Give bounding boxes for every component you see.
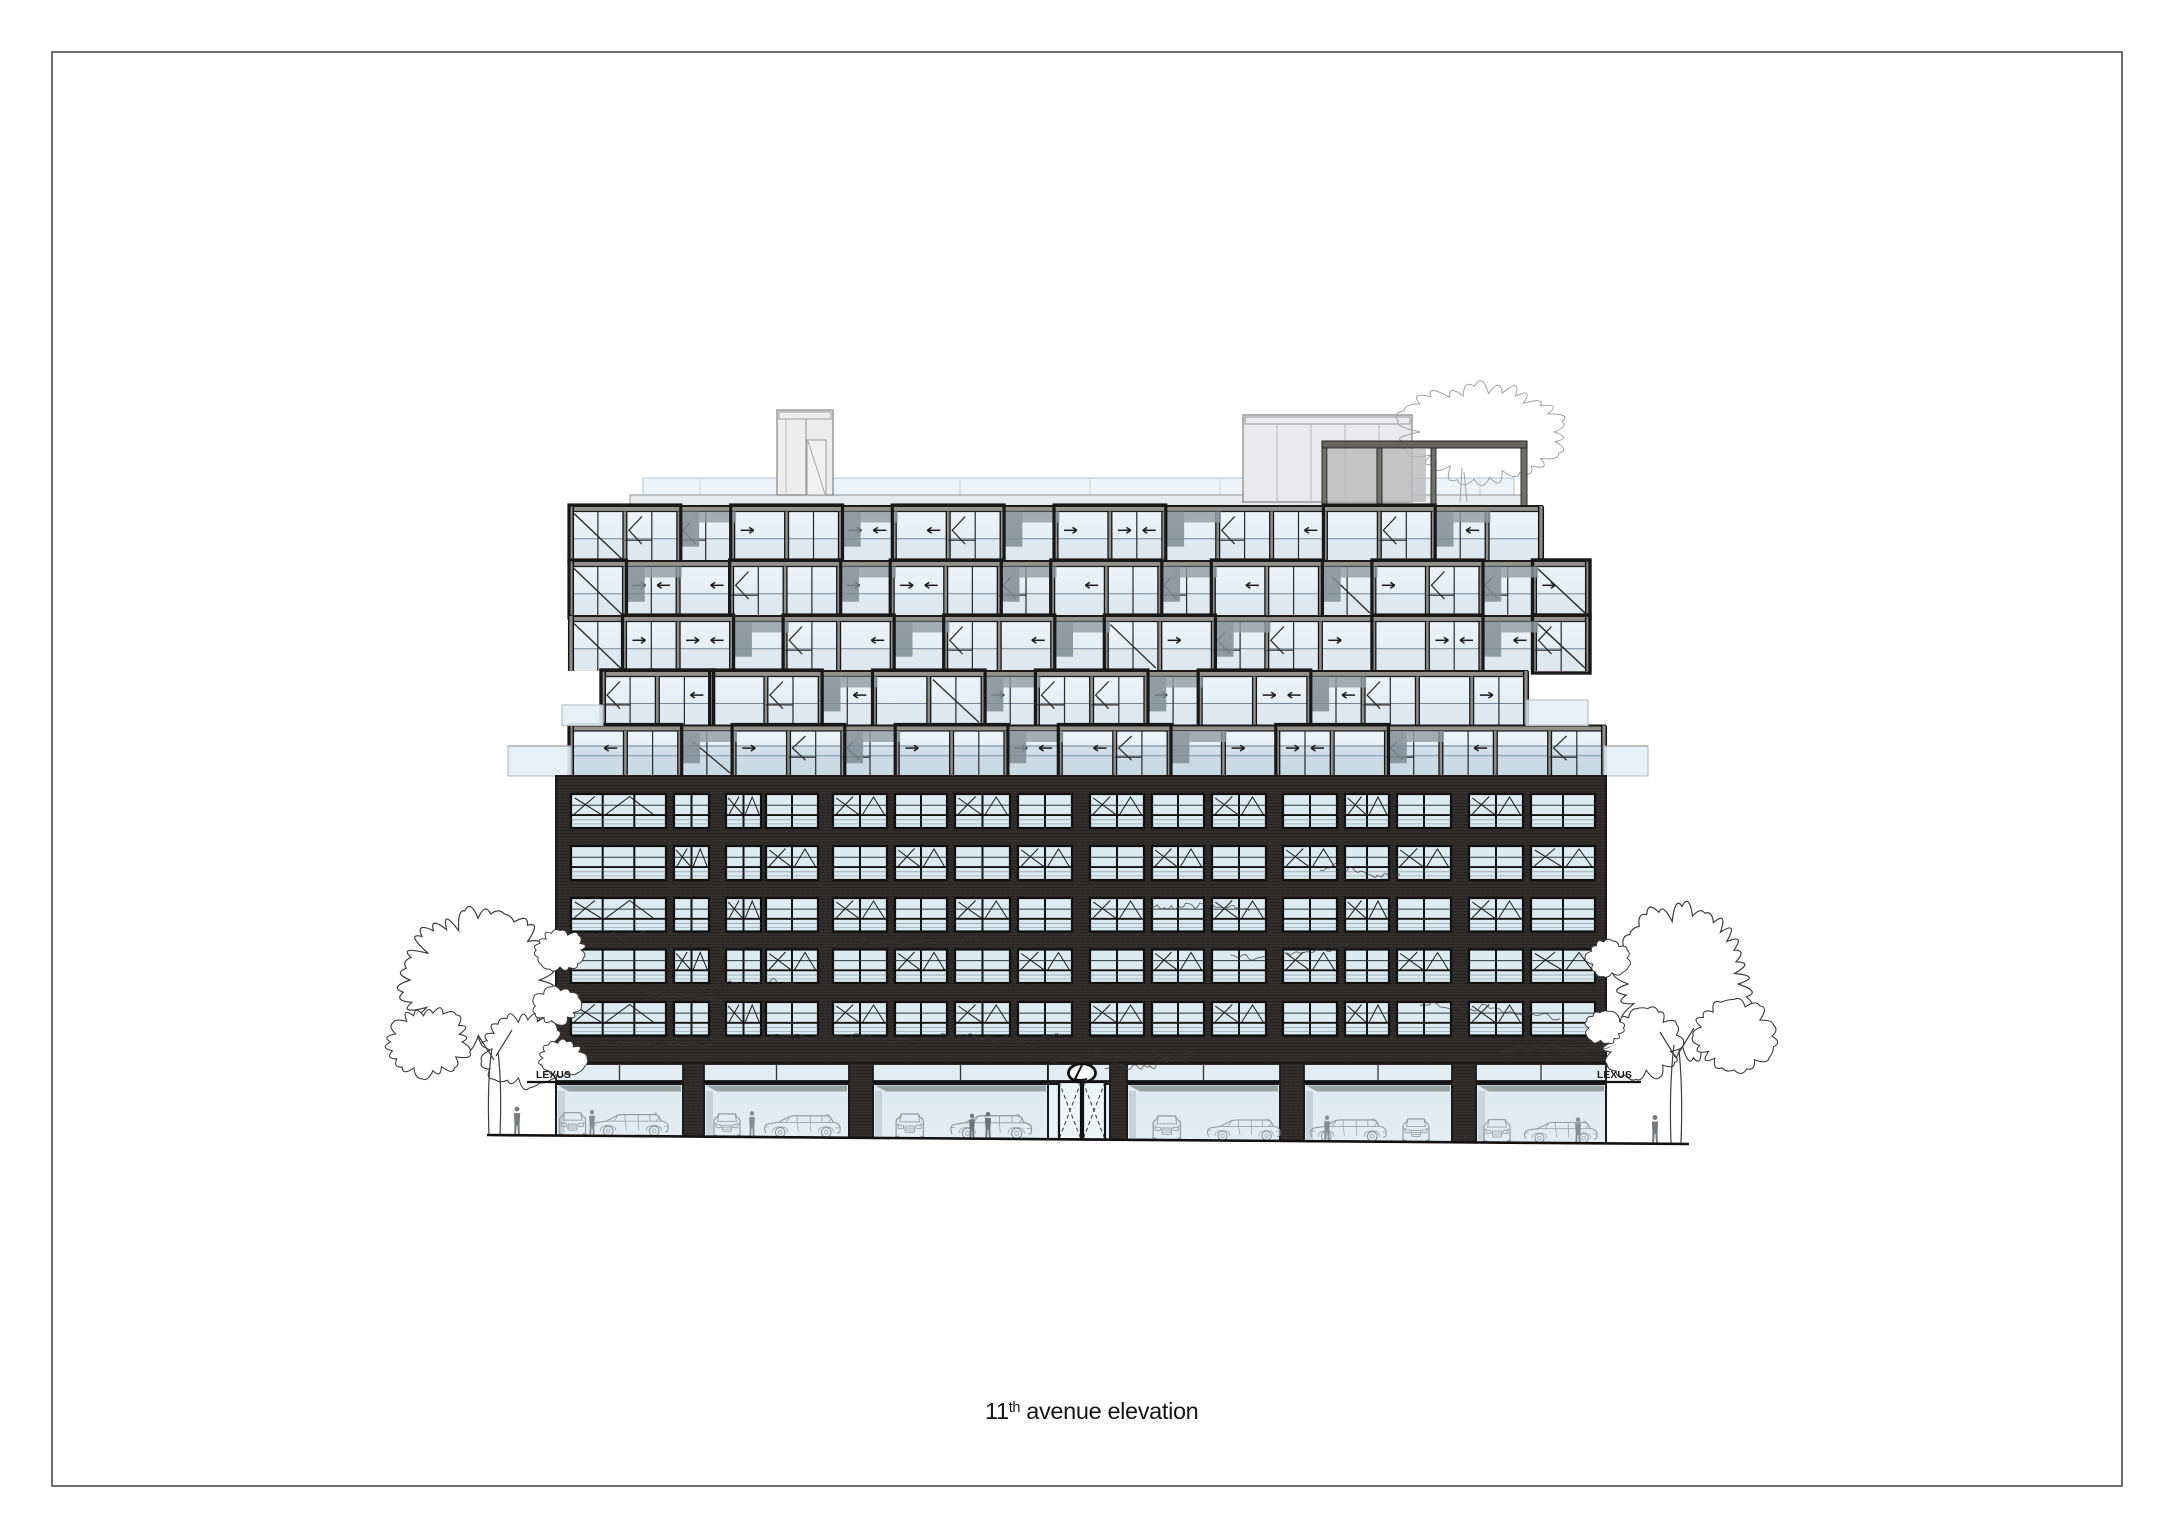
svg-text:LEXUS: LEXUS (1597, 1070, 1632, 1081)
svg-text:LEXUS: LEXUS (536, 1070, 571, 1081)
